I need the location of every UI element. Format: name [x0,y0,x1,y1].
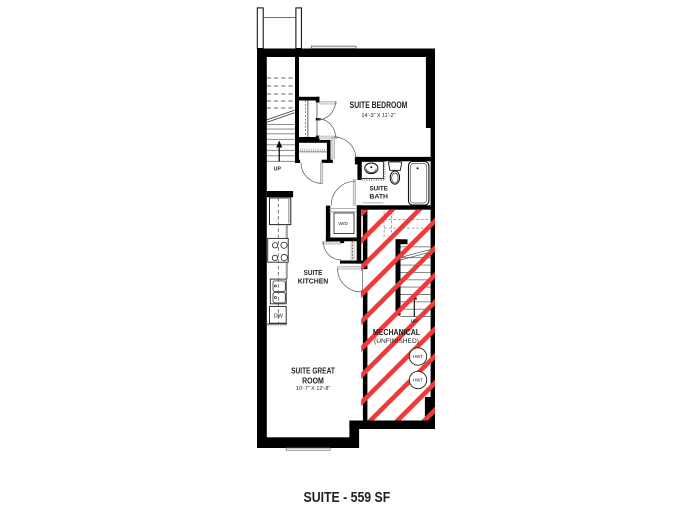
svg-text:W/D: W/D [338,221,348,227]
svg-text:HWT: HWT [413,354,423,359]
svg-text:SUITE BEDROOM: SUITE BEDROOM [350,100,408,111]
svg-text:BATH: BATH [369,194,388,201]
svg-text:SUITE - 559 SF: SUITE - 559 SF [304,490,391,506]
svg-text:SUITE: SUITE [304,268,323,277]
svg-text:MECHANICAL: MECHANICAL [373,328,420,337]
svg-text:SUITE GREAT: SUITE GREAT [291,367,335,376]
svg-text:KITCHEN: KITCHEN [298,277,329,286]
svg-text:UP: UP [274,167,281,173]
svg-text:SUITE: SUITE [369,185,388,192]
svg-text:UP: UP [411,318,418,324]
svg-text:HWT: HWT [413,378,423,383]
svg-text:ROOM: ROOM [302,376,324,385]
svg-text:14’-3” X 11’-2”: 14’-3” X 11’-2” [362,113,396,119]
svg-text:10’-7” X 12’-8”: 10’-7” X 12’-8” [296,386,330,392]
svg-text:(UNFINISHED): (UNFINISHED) [374,339,419,345]
